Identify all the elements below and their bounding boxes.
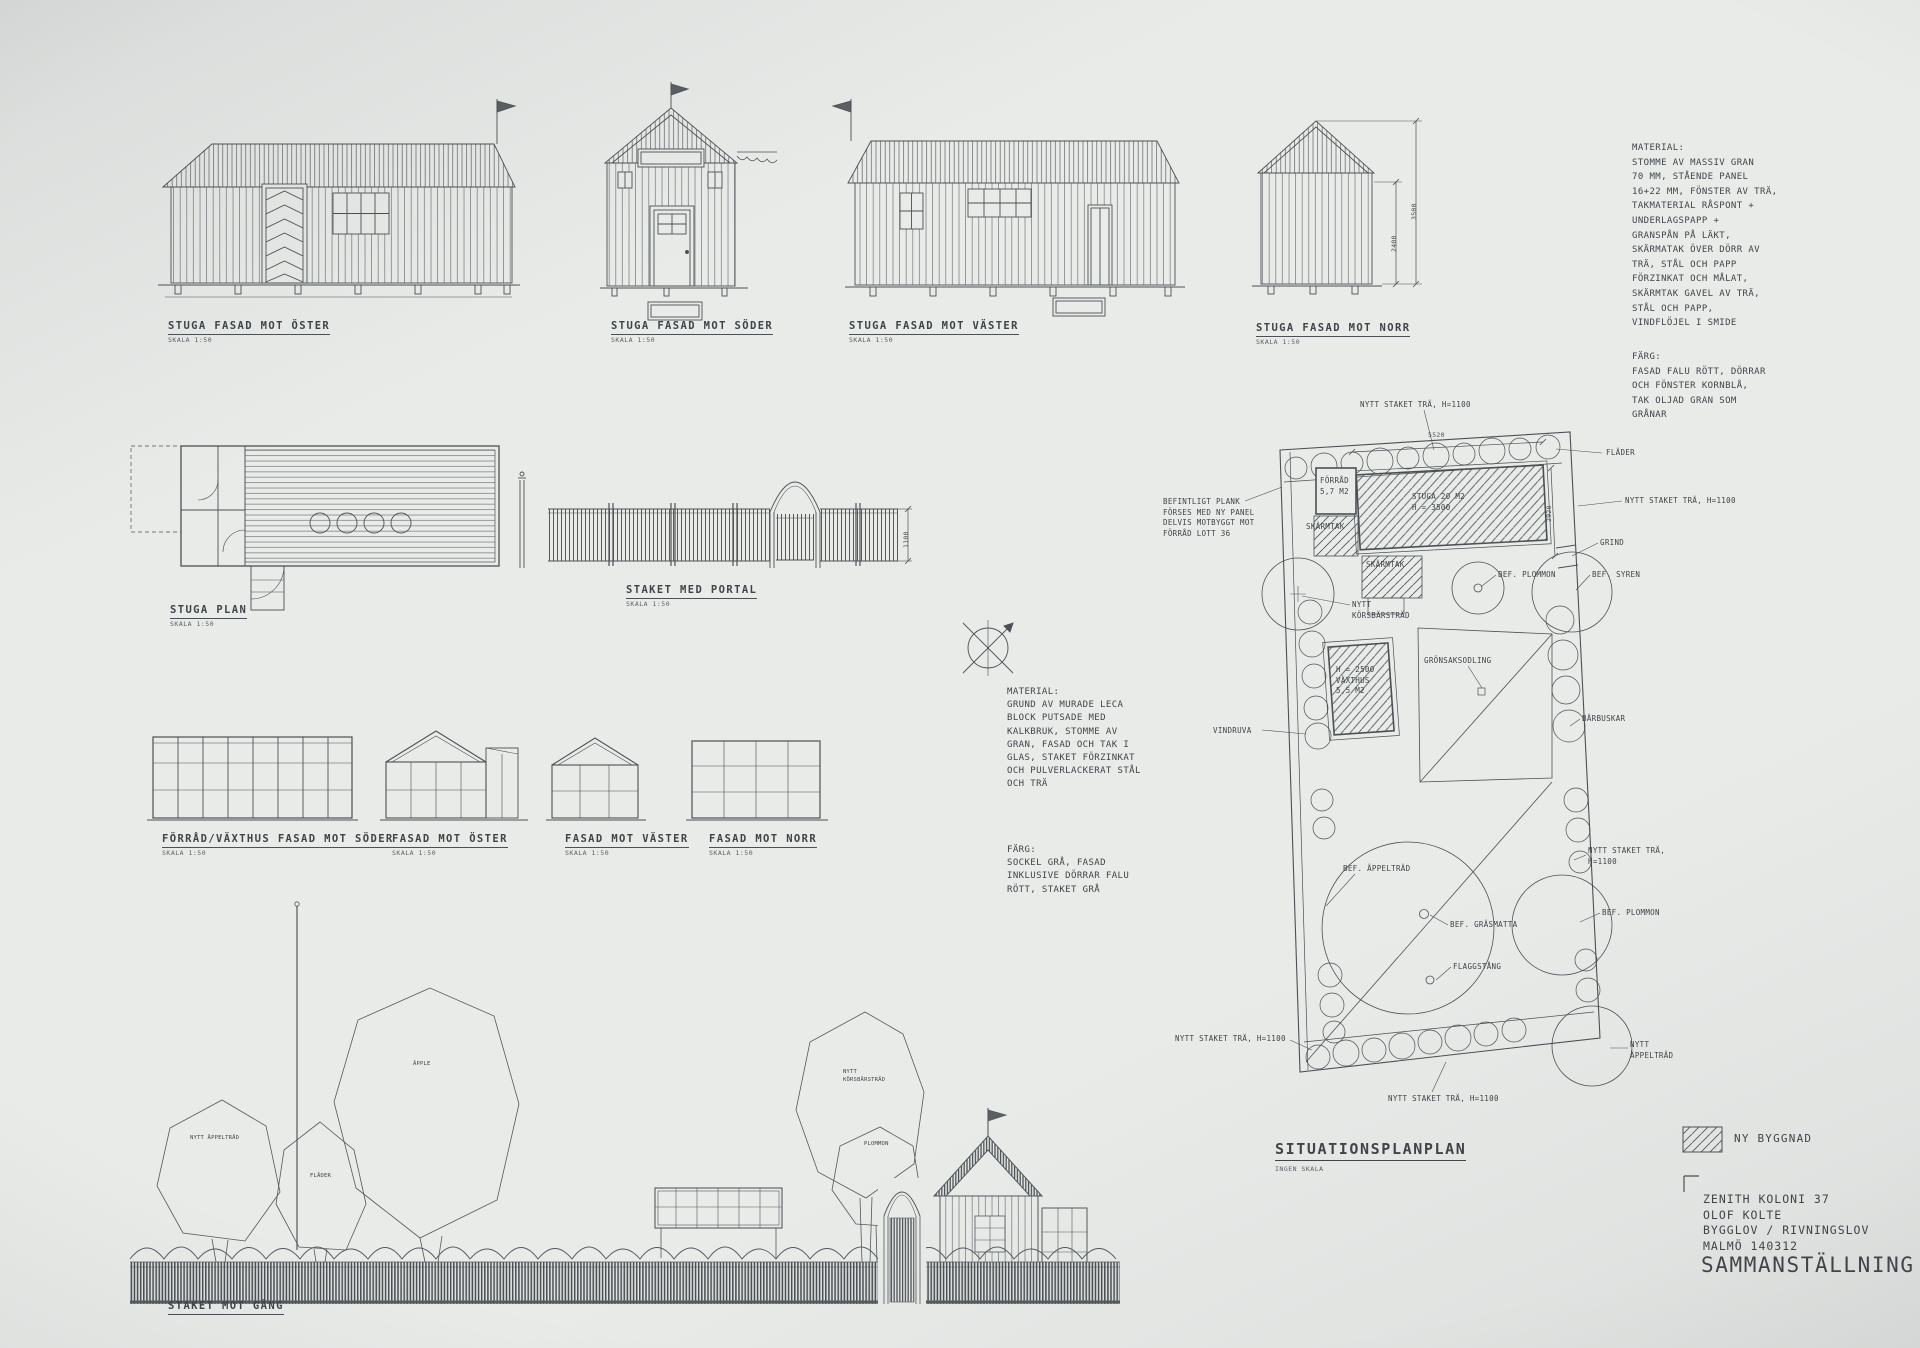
vaxthus-south-title: FÖRRÅD/VÄXTHUS FASAD MOT SÖDER: [162, 833, 394, 848]
tree-flader: [276, 1122, 366, 1250]
vaxthus-south-scale: SKALA 1:50: [162, 849, 206, 857]
scene-gate: [878, 1178, 926, 1304]
stuga-west-title: STUGA FASAD MOT VÄSTER: [849, 320, 1019, 335]
vaxthus-west-scale: SKALA 1:50: [565, 849, 609, 857]
sp-barbuskar-label: BÄRBUSKAR: [1582, 714, 1625, 725]
stuga-color-note: FÄRG: FASAD FALU RÖTT, DÖRRAR OCH FÖNSTE…: [1632, 350, 1766, 423]
titleblock-project-info: ZENITH KOLONI 37 OLOF KOLTE BYGGLOV / RI…: [1703, 1192, 1869, 1254]
stuga-plan-drawing: [131, 446, 499, 610]
sp-forrad-label: FÖRRÅD 5,7 M2: [1320, 476, 1349, 497]
sp-stuga-label: STUGA 20 M2 H = 3500: [1412, 492, 1465, 513]
sp-staket-right-label: NYTT STAKET TRÄ, H=1100: [1625, 496, 1736, 507]
stuga-east-title: STUGA FASAD MOT ÖSTER: [168, 320, 330, 335]
staket-portal-scale: SKALA 1:50: [626, 600, 670, 608]
sp-vindruva-label: VINDRUVA: [1213, 726, 1252, 737]
stuga-north-title: STUGA FASAD MOT NORR: [1256, 322, 1410, 337]
sp-bef-syren-label: BEF. SYREN: [1592, 570, 1640, 581]
legend-swatch: [1683, 1127, 1722, 1152]
stuga-south-title: STUGA FASAD MOT SÖDER: [611, 320, 773, 335]
sp-bef-plommon-low-label: BEF. PLOMMON: [1602, 908, 1660, 919]
sp-staket-bottom-label: NYTT STAKET TRÄ, H=1100: [1388, 1094, 1499, 1105]
vaxthus-material-note: MATERIAL: GRUND AV MURADE LECA BLOCK PUT…: [1007, 686, 1141, 792]
sp-bef-plommon-top-label: BEF. PLOMMON: [1498, 570, 1556, 581]
fence-band: [130, 1262, 1120, 1304]
vaxthus-west-title: FASAD MOT VÄSTER: [565, 833, 689, 848]
stuga-north-scale: SKALA 1:50: [1256, 338, 1300, 346]
sp-skarmtak1-label: SKÄRMTAK: [1306, 522, 1345, 533]
sp-bef-grasmatta-label: BEF. GRÄSMATTA: [1450, 920, 1517, 931]
siteplan-title: SITUATIONSPLANPLAN: [1275, 1140, 1466, 1161]
vaxthus-east-title: FASAD MOT ÖSTER: [392, 833, 508, 848]
sp-flaggstang-label: FLAGGSTÅNG: [1453, 962, 1501, 973]
stuga-west-scale: SKALA 1:50: [849, 336, 893, 344]
sp-dim-right: 2920: [1545, 505, 1553, 522]
drawing-sheet: STUGA FASAD MOT ÖSTER SKALA 1:50 STUGA F…: [0, 0, 1920, 1348]
sp-staket-right2-label: NYTT STAKET TRÄ, H=1100: [1588, 846, 1665, 867]
scene-cottage: [934, 1108, 1087, 1278]
staket-portal-height-dim: 1100: [902, 531, 910, 548]
sp-nytt-appeltrad-label: NYTT ÄPPELTRÄD: [1630, 1040, 1673, 1061]
scene-apple-new-label: NYTT ÄPPELTRÄD: [190, 1134, 239, 1142]
titleblock-corner-mark: [1684, 1176, 1699, 1192]
dim-wall-height: 2400: [1390, 235, 1398, 252]
vaxthus-color-note: FÄRG: SOCKEL GRÅ, FASAD INKLUSIVE DÖRRAR…: [1007, 844, 1129, 897]
sp-flader-label: FLÄDER: [1606, 448, 1635, 459]
stuga-plan-scale: SKALA 1:50: [170, 620, 214, 628]
dim-ridge-height: 3500: [1410, 203, 1418, 220]
stuga-material-note: MATERIAL: STOMME AV MASSIV GRAN 70 MM, S…: [1632, 141, 1777, 331]
sp-staket-top-label: NYTT STAKET TRÄ, H=1100: [1360, 400, 1471, 411]
scene-plommon-label: PLOMMON: [864, 1140, 889, 1148]
scene-apple-big-label: ÄPPLE: [413, 1060, 431, 1068]
stuga-north-elevation-drawing: [1252, 118, 1422, 294]
sp-bef-appeltrad-label: BEF. ÄPPELTRÄD: [1343, 864, 1410, 875]
staket-gang-scene-drawing: [130, 902, 1120, 1304]
sp-grind-label: GRIND: [1600, 538, 1624, 549]
stuga-south-elevation-drawing: [600, 82, 777, 320]
sp-dim-top: 5520: [1428, 431, 1445, 439]
sp-vaxthus-label: H = 2500 VÄXTHUS 5,5 M2: [1336, 665, 1375, 697]
titleblock-drawing-title: SAMMANSTÄLLNING: [1701, 1252, 1915, 1278]
tree-korsbarstrad: [796, 1012, 924, 1198]
staket-portal-drawing: [518, 455, 912, 568]
tree-new-apple: [157, 1100, 280, 1241]
vaxthus-east-scale: SKALA 1:50: [392, 849, 436, 857]
siteplan-scale: INGEN SKALA: [1275, 1165, 1324, 1173]
staket-gang-title: STAKET MOT GÅNG: [168, 1300, 284, 1315]
vaxthus-north-scale: SKALA 1:50: [709, 849, 753, 857]
stuga-west-elevation-drawing: [833, 99, 1185, 316]
sp-korsbarstrad-label: NYTT KÖRSBÄRSTRÄD: [1352, 600, 1410, 621]
scene-flader-label: FLÄDER: [310, 1172, 331, 1180]
sp-gronsaksodling-label: GRÖNSAKSODLING: [1424, 656, 1491, 667]
sp-befintligt-plank-note: BEFINTLIGT PLANK FÖRSES MED NY PANEL DEL…: [1163, 497, 1255, 539]
vaxthus-north-title: FASAD MOT NORR: [709, 833, 817, 848]
stuga-south-scale: SKALA 1:50: [611, 336, 655, 344]
vaxthus-elevations-drawing: [147, 731, 828, 820]
staket-portal-title: STAKET MED PORTAL: [626, 584, 757, 599]
legend-new-building-label: NY BYGGNAD: [1734, 1132, 1812, 1146]
stuga-east-scale: SKALA 1:50: [168, 336, 212, 344]
scene-korsbarstrad-label: NYTT KÖRSBÄRSTRÄD: [843, 1068, 885, 1084]
scene-greenhouse: [655, 1188, 782, 1258]
sp-staket-bottom-left-label: NYTT STAKET TRÄ, H=1100: [1175, 1034, 1286, 1045]
tree-apple-big: [334, 988, 519, 1238]
stuga-east-elevation-drawing: [158, 99, 520, 297]
stuga-plan-title: STUGA PLAN: [170, 604, 247, 619]
sp-skarmtak2-label: SKÄRMTAK: [1366, 560, 1405, 571]
compass-icon: [963, 620, 1013, 676]
